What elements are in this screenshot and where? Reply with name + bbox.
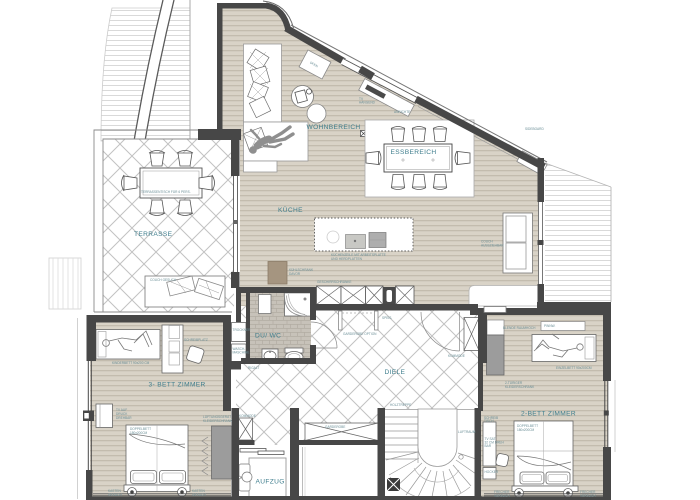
svg-text:2-BETT ZIMMER: 2-BETT ZIMMER [521, 411, 576, 418]
svg-text:TERRASSE: TERRASSE [134, 231, 173, 238]
svg-text:GARDEROBE OPTION: GARDEROBE OPTION [343, 332, 377, 336]
svg-text:DAVOR: DAVOR [289, 272, 301, 276]
svg-text:MASCHINE: MASCHINE [233, 351, 250, 355]
svg-text:SIDEBOARD: SIDEBOARD [525, 127, 544, 131]
svg-text:KÜCHE: KÜCHE [278, 206, 303, 214]
svg-text:ESSBEREICH: ESSBEREICH [391, 149, 437, 156]
svg-text:DREHBAR: DREHBAR [116, 416, 132, 420]
svg-text:AUFZUG: AUFZUG [256, 479, 285, 486]
svg-text:COUCH GESUCH: COUCH GESUCH [150, 278, 177, 282]
svg-text:PINNW.: PINNW. [544, 324, 555, 328]
svg-text:LUFTRAUM: LUFTRAUM [458, 430, 476, 434]
svg-text:KOMMODE: KOMMODE [239, 414, 256, 418]
svg-text:GESUCH: GESUCH [108, 493, 122, 497]
svg-text:GESUCH: GESUCH [192, 493, 206, 497]
svg-text:UND HERDPLATTEN: UND HERDPLATTEN [331, 257, 363, 261]
svg-text:180x200CM: 180x200CM [130, 431, 148, 435]
svg-text:RIGALT: RIGALT [248, 366, 259, 370]
svg-text:VERSUCH: VERSUCH [580, 494, 596, 498]
svg-text:HOLZTREPPE: HOLZTREPPE [390, 403, 411, 407]
svg-text:SPEIS.: SPEIS. [382, 316, 392, 320]
svg-text:GESCHIRRSCHRÄNKE: GESCHIRRSCHRÄNKE [317, 280, 352, 284]
svg-text:KOMMODE: KOMMODE [448, 354, 465, 358]
svg-text:KLEIDERSCHRANK: KLEIDERSCHRANK [203, 419, 233, 423]
svg-text:VERSUCH: VERSUCH [494, 494, 510, 498]
svg-text:BLENDE RAUMHOCH: BLENDE RAUMHOCH [503, 326, 536, 330]
svg-text:ANRICHTE: ANRICHTE [394, 110, 410, 114]
svg-text:GARDEROBE: GARDEROBE [325, 425, 345, 429]
svg-text:KINDERBETT 90x200 CM: KINDERBETT 90x200 CM [112, 361, 150, 365]
svg-text:180x200CM: 180x200CM [517, 428, 535, 432]
svg-text:WOHNBEREICH: WOHNBEREICH [307, 124, 361, 131]
svg-text:HÄNGEND: HÄNGEND [359, 101, 376, 105]
svg-text:BAR: BAR [485, 444, 492, 448]
svg-text:AUSSZIEHBAR: AUSSZIEHBAR [481, 244, 504, 248]
svg-text:DU/ WC: DU/ WC [255, 333, 281, 340]
svg-text:KLEIDERSCHRANK: KLEIDERSCHRANK [505, 385, 535, 389]
svg-text:HOCKER: HOCKER [485, 470, 499, 474]
svg-text:3- BETT ZIMMER: 3- BETT ZIMMER [149, 382, 206, 389]
svg-text:TROCKNER: TROCKNER [233, 328, 252, 332]
svg-text:SCHREIBPLATZ: SCHREIBPLATZ [184, 338, 208, 342]
svg-text:TISCH: TISCH [484, 419, 494, 423]
svg-text:TERRASSENTISCH FÜR 6 PERS.: TERRASSENTISCH FÜR 6 PERS. [141, 190, 191, 194]
svg-text:DIELE: DIELE [385, 369, 406, 376]
svg-text:EINZELBETT 90x200CM: EINZELBETT 90x200CM [556, 366, 592, 370]
